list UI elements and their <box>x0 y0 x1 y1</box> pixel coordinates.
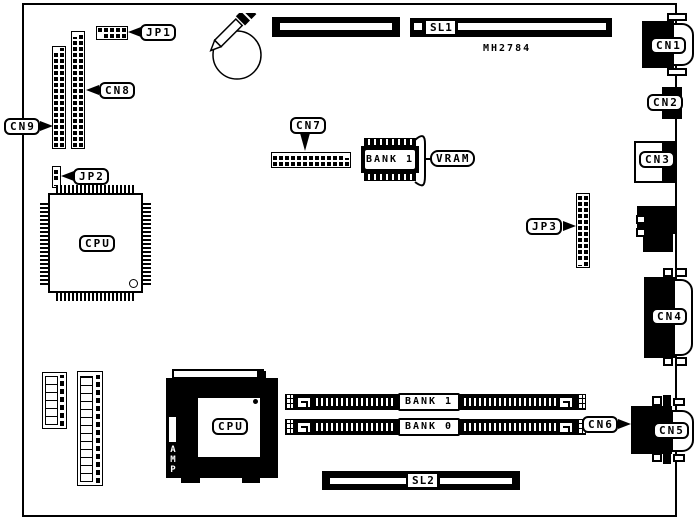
label-cn5: CN5 <box>653 422 689 439</box>
label-jp1: JP1 <box>140 24 176 41</box>
bank0-endcap-left <box>285 419 294 435</box>
label-jp3-pointer <box>563 221 576 231</box>
battery <box>193 13 271 89</box>
bank0-latch-right <box>558 421 574 434</box>
qfp-pins-left <box>40 201 48 285</box>
din-connector-base <box>643 234 673 252</box>
header-cn9 <box>52 46 66 149</box>
label-cn8-pointer <box>86 85 99 95</box>
slot-sl1-key <box>414 23 422 30</box>
qfp-pins-top <box>56 185 136 193</box>
bank0-latch-right-hook <box>563 426 570 432</box>
part-number-text: MH2784 <box>483 43 531 54</box>
sip-left-pins <box>60 375 64 426</box>
qfp-pin1-mark <box>129 279 138 288</box>
label-vram: VRAM <box>430 150 475 167</box>
header-cn7 <box>271 152 351 168</box>
label-amp: AMP <box>167 442 179 477</box>
label-cn7-pointer <box>300 133 310 151</box>
din-jack-top <box>636 215 646 224</box>
cn4-tab-bottom-b <box>675 357 687 366</box>
label-jp2: JP2 <box>73 168 109 185</box>
bank1-contacts-left <box>316 398 396 406</box>
sip-right-pins <box>96 375 100 483</box>
bank0-latch-left-hook <box>301 426 308 432</box>
expansion-slot-groove <box>280 23 392 30</box>
cn5-tab-bottom-a <box>652 453 662 462</box>
label-bank1: BANK 1 <box>398 393 460 411</box>
label-cn6: CN6 <box>582 416 618 433</box>
label-vram-bank: BANK 1 <box>363 148 417 171</box>
label-bank0: BANK 0 <box>398 418 460 436</box>
cn4-tab-bottom-a <box>663 357 673 366</box>
label-cn9: CN9 <box>4 118 40 135</box>
cn4-tab-top-b <box>675 268 687 277</box>
cn4-tab-top-a <box>663 268 673 277</box>
label-cn7: CN7 <box>290 117 326 134</box>
label-cn1: CN1 <box>650 37 686 54</box>
label-jp3: JP3 <box>526 218 562 235</box>
label-sl1: SL1 <box>424 19 457 36</box>
slot-sl1-groove <box>458 23 606 30</box>
motherboard-diagram: SL1 MH2784 JP1 CN8 CN9 JP2 CPU CN7 BAN <box>0 0 695 520</box>
slot-sl2-groove-left <box>330 478 406 484</box>
header-jp3 <box>576 193 590 268</box>
cn5-tab-top-c <box>673 398 685 406</box>
label-cn9-pointer <box>40 121 53 131</box>
bank0-contacts-left <box>316 423 396 431</box>
din-jack-bottom <box>636 228 646 237</box>
pga-side-slot <box>169 417 176 442</box>
cn5-tab-bottom-c <box>673 454 685 462</box>
bank1-latch-left-hook <box>301 401 308 407</box>
cn5-tab-bottom-b <box>663 452 671 464</box>
bank1-endcap-left <box>285 394 294 410</box>
bank1-endcap-right <box>577 394 586 410</box>
label-sl2: SL2 <box>406 472 439 489</box>
vram-chip-pins-top <box>364 138 416 146</box>
pga-foot-right <box>242 477 260 483</box>
bank0-contacts-right <box>464 423 556 431</box>
label-cn2: CN2 <box>647 94 683 111</box>
header-cn8-pin1 <box>73 33 77 37</box>
bank1-latch-right-hook <box>563 401 570 407</box>
label-cpu-pga: CPU <box>212 418 248 435</box>
sip-right-pads <box>80 376 93 482</box>
pga-foot-left <box>181 477 200 483</box>
header-jp1-pin1 <box>98 34 102 38</box>
header-cn9-pin1 <box>54 48 58 52</box>
qfp-pins-bottom <box>56 293 136 301</box>
header-cn7-pin1 <box>345 154 349 158</box>
label-cn3: CN3 <box>639 151 675 168</box>
bank1-latch-right <box>558 396 574 409</box>
vram-chip-pins-bottom <box>364 173 416 181</box>
cn1-tab-top <box>667 13 687 21</box>
cn5-tab-top-a <box>652 396 662 406</box>
qfp-pins-right <box>143 201 151 285</box>
bank1-contacts-right <box>464 398 556 406</box>
slot-sl2-groove-right <box>440 478 512 484</box>
label-cn8: CN8 <box>99 82 135 99</box>
sip-left-pads <box>45 376 58 425</box>
pga-pin1-dot <box>253 399 258 404</box>
label-cn4: CN4 <box>651 308 687 325</box>
label-cpu-qfp: CPU <box>79 235 115 252</box>
bank0-latch-left <box>296 421 312 434</box>
header-cn8 <box>71 31 85 149</box>
header-jp3-pin1 <box>578 261 582 265</box>
cn1-tab-bottom <box>667 68 687 76</box>
bank1-latch-left <box>296 396 312 409</box>
label-cn6-pointer <box>618 419 631 429</box>
